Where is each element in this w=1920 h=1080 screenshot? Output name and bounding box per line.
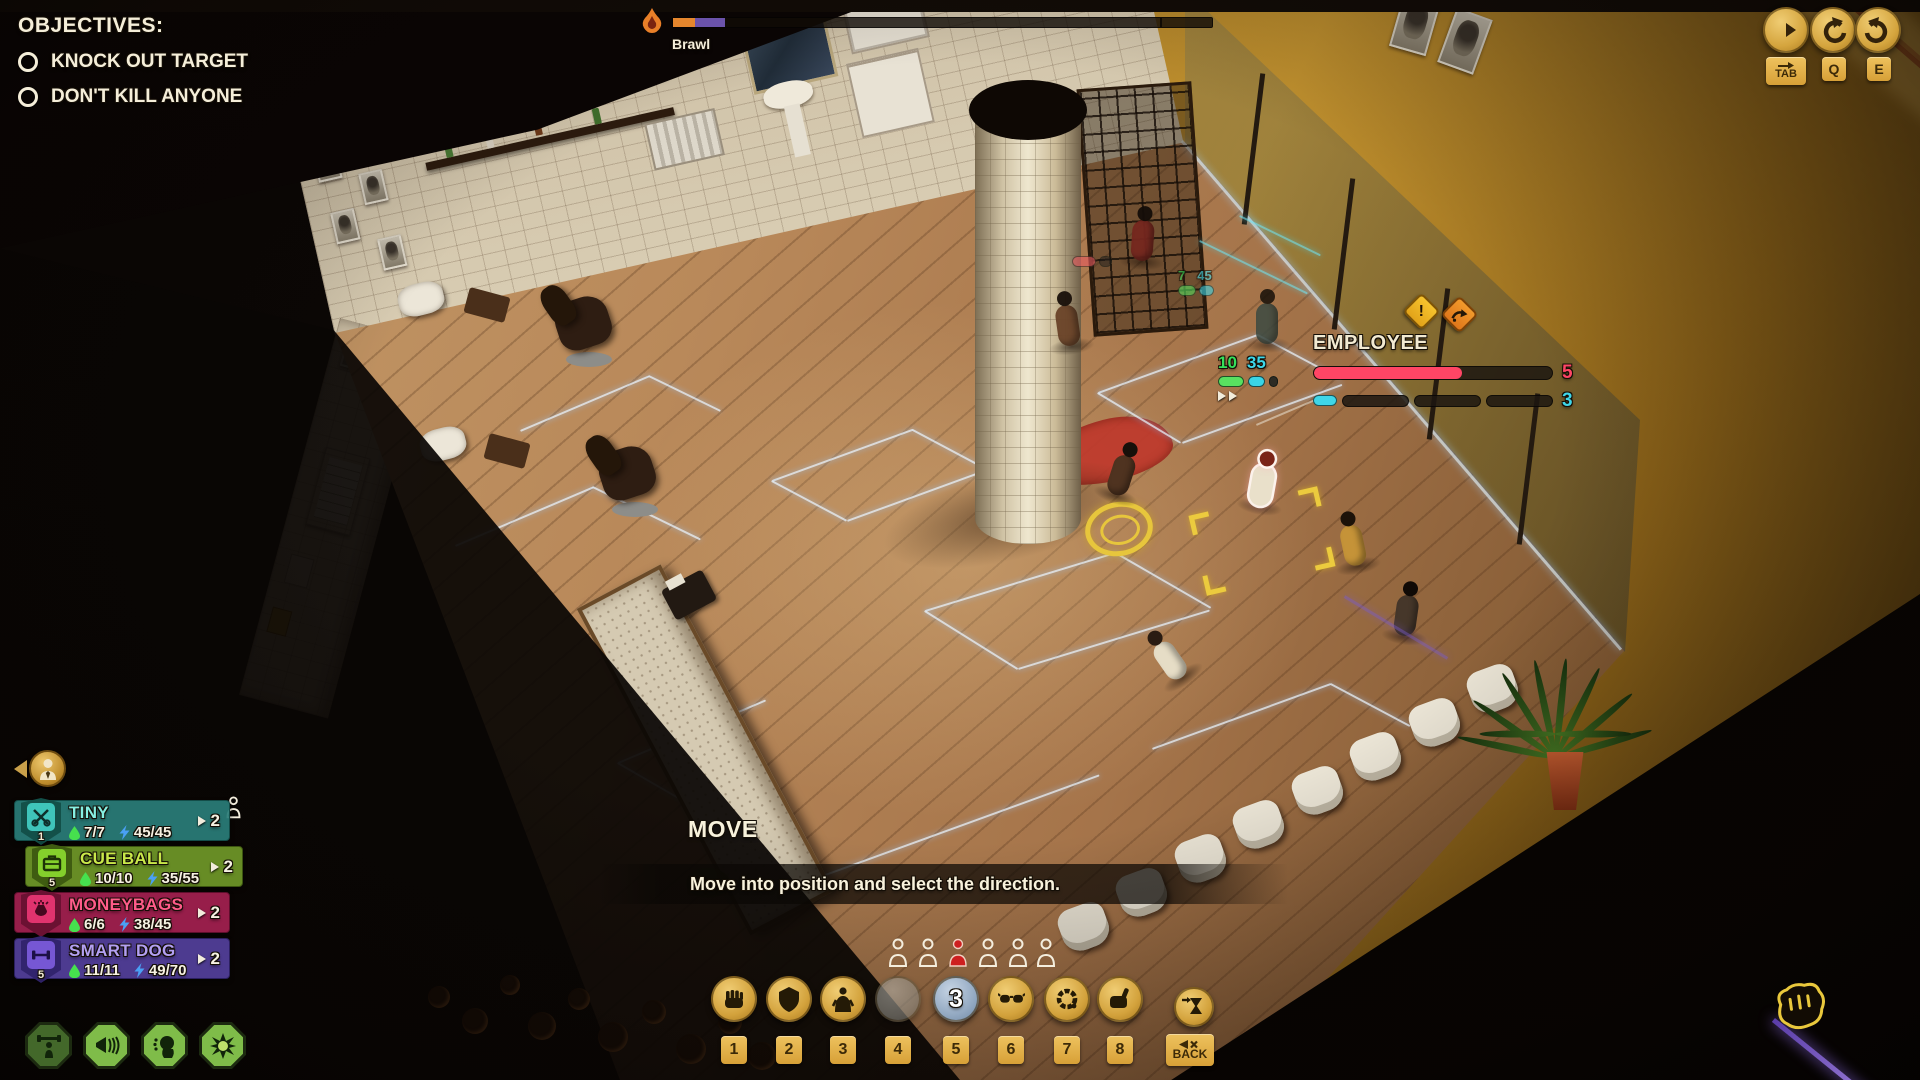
- rotate-cw-icon: [1864, 16, 1892, 44]
- target-morale-value: 3: [1562, 390, 1582, 412]
- coat-stand-knob: [598, 1022, 628, 1052]
- action-arrow-icon: [211, 862, 219, 872]
- member-stamina: 35/55: [162, 870, 200, 887]
- stamina-icon: [147, 871, 158, 886]
- coat-stand-knob: [642, 1000, 666, 1024]
- squad-member-smart-dog[interactable]: 5 SMART DOG 11/11 49/70 2: [14, 938, 230, 979]
- objective-item: DON'T KILL ANYONE: [18, 86, 248, 108]
- stamina-icon: [119, 917, 130, 932]
- morale-slot: [1342, 395, 1409, 407]
- key-hint-3: 3: [830, 1036, 856, 1064]
- barber-chair-base: [566, 352, 612, 367]
- enemy-stamina-number: 35: [1247, 353, 1266, 373]
- member-actions: 2: [211, 811, 220, 831]
- key-hint-4: 4: [885, 1036, 911, 1064]
- squad-member-cue-ball[interactable]: 5 CUE BALL 10/10 35/55 2: [25, 846, 243, 887]
- ability-punch[interactable]: [711, 976, 757, 1022]
- shield-icon: [776, 986, 802, 1013]
- crowd-pip: [1036, 938, 1056, 968]
- key-hint-1: 1: [721, 1036, 747, 1064]
- grab-hand-icon: [1107, 986, 1133, 1012]
- enemy-health-marker: [1072, 256, 1112, 267]
- enemy-status-marker: 745: [1178, 268, 1214, 296]
- dumbbell-icon: [31, 945, 51, 965]
- target-health-bar: [1313, 366, 1553, 380]
- member-stamina: 38/45: [134, 916, 172, 933]
- grapple-person-icon: [830, 986, 856, 1013]
- hourglass-icon: [1181, 994, 1207, 1020]
- member-actions: 2: [211, 903, 220, 923]
- squad-member-tiny[interactable]: 1 TINY 7/7 45/45 2: [14, 800, 230, 841]
- morale-pip-filled: [1313, 395, 1337, 406]
- member-actions: 2: [211, 949, 220, 969]
- objective-checkbox: [18, 87, 38, 107]
- key-hint-tab: TAB: [1766, 57, 1806, 85]
- health-icon: [69, 964, 80, 978]
- timeline-segment-active: [673, 18, 695, 27]
- member-stamina: 45/45: [134, 824, 172, 841]
- timeline-segment-next: [695, 18, 725, 27]
- turn-timeline[interactable]: [672, 17, 1213, 28]
- timeline-tick: [1160, 18, 1162, 27]
- buff-strength[interactable]: [25, 1022, 72, 1069]
- ability-tie-up[interactable]: [1044, 976, 1090, 1022]
- squad-member-moneybags[interactable]: MONEYBAGS 6/6 38/45 2: [14, 892, 230, 933]
- shout-icon: [93, 1032, 121, 1060]
- ability-loot[interactable]: [1097, 976, 1143, 1022]
- coat-stand-knob: [528, 1012, 556, 1040]
- action-point-arrow: [1229, 391, 1237, 401]
- scissors-icon: [31, 807, 51, 827]
- flame-icon: [641, 8, 663, 39]
- enemy-health-pill: [1218, 376, 1244, 387]
- ability-tooltip-description: Move into position and select the direct…: [690, 874, 1060, 895]
- pointer-triangle-icon: [14, 760, 27, 778]
- ability-grapple[interactable]: [820, 976, 866, 1022]
- rotate-ccw-icon: [1819, 16, 1847, 44]
- enemy-stamina-pill: [1248, 376, 1265, 387]
- target-morale-bar: [1313, 395, 1553, 407]
- member-health: 11/11: [84, 962, 120, 979]
- key-hint-2: 2: [776, 1036, 802, 1064]
- enemy-stamina-empty: [1269, 376, 1278, 387]
- member-health: 6/6: [84, 916, 105, 933]
- squad-roster: 1 TINY 7/7 45/45 2 5 CUE BALL 10/10 35/5…: [14, 800, 243, 984]
- member-health: 7/7: [84, 824, 105, 841]
- talking-head-icon: [151, 1032, 179, 1060]
- ability-guard[interactable]: [766, 976, 812, 1022]
- target-health-value: 5: [1562, 362, 1582, 384]
- member-level: 5: [36, 877, 68, 889]
- briefcase-icon: [42, 853, 62, 873]
- next-target-button[interactable]: [1763, 7, 1809, 53]
- ability-tooltip-band: Move into position and select the direct…: [598, 864, 1288, 904]
- coat-stand-knob: [748, 1042, 776, 1070]
- enemy-character[interactable]: [1252, 288, 1282, 348]
- moneybag-icon: [31, 899, 51, 919]
- fist-icon: [721, 986, 747, 1012]
- coat-stand-knob: [500, 975, 520, 995]
- crowd-pip: [1008, 938, 1028, 968]
- member-stamina: 49/70: [149, 962, 187, 979]
- objective-checkbox: [18, 52, 38, 72]
- key-hint-back: BACK: [1166, 1034, 1214, 1066]
- action-arrow-icon: [198, 816, 206, 826]
- crowd-pip: [918, 938, 938, 968]
- action-arrow-icon: [198, 954, 206, 964]
- key-hint-5: 5: [943, 1036, 969, 1064]
- morale-slot: [1486, 395, 1553, 407]
- member-level: 5: [25, 969, 57, 981]
- consumable-count: 3: [949, 985, 963, 1014]
- objective-label: KNOCK OUT TARGET: [51, 51, 248, 73]
- member-class-shield: [21, 890, 61, 937]
- encounter-label: Brawl: [672, 36, 710, 52]
- ability-consumable-count[interactable]: 3: [933, 976, 979, 1022]
- pillar-top: [969, 80, 1087, 140]
- health-icon: [80, 872, 91, 886]
- health-icon: [69, 826, 80, 840]
- enemy-character[interactable]: [1126, 204, 1160, 266]
- objectives-title: OBJECTIVES:: [18, 14, 248, 38]
- ability-tooltip-title: MOVE: [688, 816, 758, 843]
- key-hint-q: Q: [1822, 57, 1846, 81]
- rotate-camera-left-button[interactable]: [1810, 7, 1856, 53]
- key-hint-e: E: [1867, 57, 1891, 81]
- coat-stand-knob: [462, 1008, 488, 1034]
- rope-icon: [1054, 986, 1081, 1013]
- barber-chair-base: [612, 502, 658, 517]
- sunglasses-icon: [998, 989, 1025, 1009]
- buff-shout[interactable]: [83, 1022, 130, 1069]
- objectives-panel: OBJECTIVES: KNOCK OUT TARGET DON'T KILL …: [18, 14, 248, 108]
- enemy-health-number: 10: [1218, 353, 1237, 373]
- civilian-indicator[interactable]: [14, 750, 66, 787]
- objective-item: KNOCK OUT TARGET: [18, 51, 248, 73]
- coat-stand-knob: [428, 986, 450, 1008]
- crowd-pip: [888, 938, 908, 968]
- rotate-camera-right-button[interactable]: [1855, 7, 1901, 53]
- member-actions: 2: [224, 857, 233, 877]
- target-health-fill: [1314, 367, 1462, 379]
- stamina-icon: [134, 963, 145, 978]
- crowd-pip-alert: [948, 938, 968, 968]
- key-hint-7: 7: [1054, 1036, 1080, 1064]
- ability-disabled[interactable]: [875, 976, 921, 1022]
- objective-label: DON'T KILL ANYONE: [51, 86, 242, 108]
- key-hint-8: 8: [1107, 1036, 1133, 1064]
- brawl-fist-icon: [1764, 976, 1838, 1050]
- dazed-icon: [1451, 306, 1469, 324]
- action-arrow-icon: [198, 908, 206, 918]
- coat-stand-knob: [676, 1034, 706, 1064]
- ability-buff-row: [25, 1022, 246, 1069]
- stamina-icon: [119, 825, 130, 840]
- selected-enemy-stats: 10 35: [1218, 353, 1278, 401]
- punch-burst-icon: [209, 1032, 237, 1060]
- buff-brawler[interactable]: [199, 1022, 246, 1069]
- buff-persuade[interactable]: [141, 1022, 188, 1069]
- lifter-icon: [35, 1032, 63, 1060]
- key-hint-6: 6: [998, 1036, 1024, 1064]
- next-arrow-icon: [1772, 16, 1800, 44]
- health-icon: [69, 918, 80, 932]
- ability-disguise[interactable]: [988, 976, 1034, 1022]
- target-unit-panel: EMPLOYEE 5 3: [1313, 332, 1583, 412]
- target-name: EMPLOYEE: [1313, 332, 1583, 355]
- game-screen: Moe & Co BARBER SHOP: [0, 0, 1920, 1080]
- crowd-pip: [978, 938, 998, 968]
- morale-slot: [1414, 395, 1481, 407]
- shadow-overlay: [0, 0, 1920, 12]
- member-health: 10/10: [95, 870, 133, 887]
- action-point-arrow: [1218, 391, 1226, 401]
- member-level: 1: [25, 831, 57, 843]
- civilian-icon: [37, 757, 59, 781]
- back-button[interactable]: [1174, 987, 1214, 1027]
- coat-stand-knob: [568, 988, 590, 1010]
